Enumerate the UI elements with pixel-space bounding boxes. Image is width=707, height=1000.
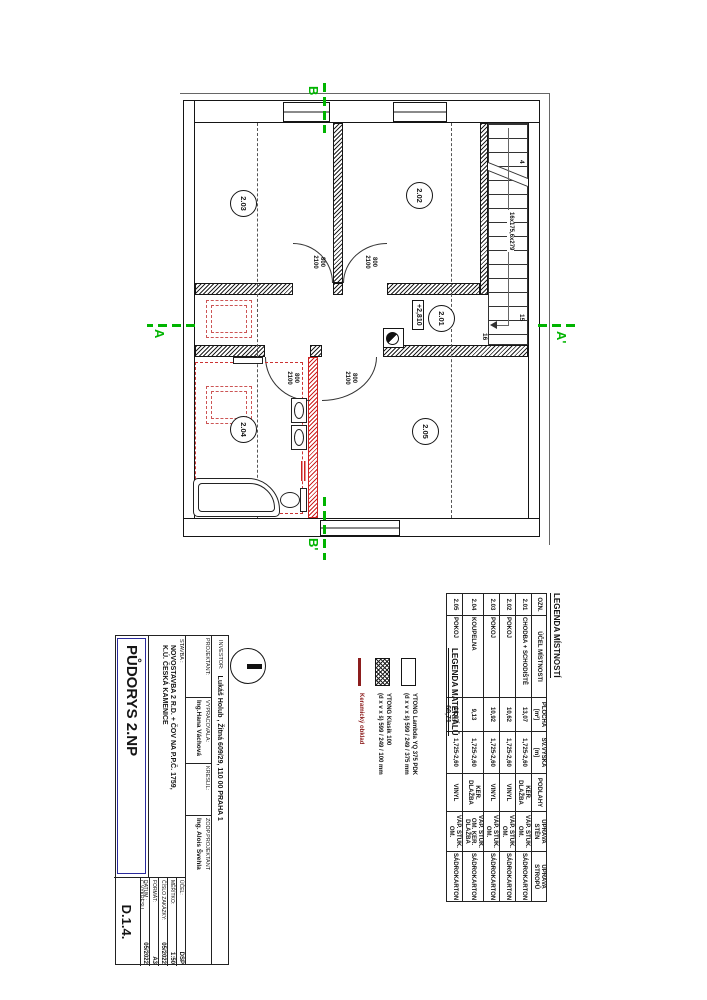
section-line-a	[147, 324, 195, 327]
room-number-2-01: 2.01	[428, 305, 455, 332]
vykres-label: Č.VÝKRESU	[138, 880, 144, 964]
stavba-label: STAVBA :	[178, 639, 184, 874]
window	[320, 520, 400, 536]
door-height: 2100	[312, 255, 318, 268]
window	[393, 102, 447, 122]
cell-ucel: POKOJ	[500, 616, 516, 698]
zodp-label: ZODP.PROJEKTANT	[204, 818, 210, 962]
orientation-needle	[247, 664, 262, 669]
stair-walkline	[496, 325, 509, 326]
roof-edge-line	[549, 93, 550, 545]
vypracovala-cell: VYPRACOVALA: Ing.Hana Váchová	[186, 698, 211, 764]
room-legend-row: 2.03 POKOJ 10,92 1,725-2,60 VINYL VÁP. Š…	[484, 594, 500, 902]
bathtub-inner	[198, 483, 275, 512]
section-line-a	[533, 324, 575, 327]
cell-ozn: 2.02	[500, 594, 516, 616]
investor-row: INVESTOR: Lukáš Holub , Žitná 609/29, 11…	[211, 636, 228, 964]
material-name: YTONG Lambda YQ 375 PDK	[411, 693, 417, 775]
projektant-cell: PROJEKTANT:	[186, 636, 211, 698]
roof-edge-line	[180, 93, 550, 94]
material-item-label: YTONG Klasik 100 (d x v x š) 599 / 249 /…	[376, 693, 391, 775]
authors-row: PROJEKTANT: VYPRACOVALA: Ing.Hana Váchov…	[185, 636, 211, 964]
material-dims: (d x v x š) 599 / 249 / 375 mm	[404, 693, 410, 775]
stair-step-number: 4	[518, 160, 525, 164]
material-swatch-ytong-klasik	[375, 658, 390, 686]
exterior-wall	[183, 100, 540, 123]
cell-plocha: 10,62	[500, 698, 516, 732]
cell-vyska: 1,725-2,60	[516, 732, 532, 774]
room-legend-row: 2.05 POKOJ 16,97 1,725-2,60 VINYL VÁP. Š…	[446, 594, 462, 902]
meritko-row: MĚŘÍTKO: 1:50	[167, 878, 176, 966]
material-dims: (d x v x š) 599 / 249 / 100 mm	[378, 693, 384, 775]
cell-vyska: 1,725-2,60	[462, 732, 483, 774]
exterior-wall	[528, 100, 540, 537]
cell-plocha: 10,92	[484, 698, 500, 732]
cell-stropy: SÁDROKARTON	[462, 852, 483, 902]
washbasin-bowl	[294, 429, 304, 446]
floor-level-label: +2,810	[412, 300, 424, 330]
partition-wall	[480, 123, 488, 295]
drawing-title-box: PŮDORYS 2.NP	[117, 638, 146, 874]
partition-wall	[383, 345, 528, 357]
header-plocha: PLOCHA [m²]	[532, 698, 547, 732]
format-label: FORMÁT:	[151, 880, 157, 902]
zodp-value: Ing. Alois Švehla	[195, 818, 202, 962]
format-row: FORMÁT: A3	[149, 878, 158, 966]
door-size-label: 800 2100	[364, 250, 377, 274]
cell-stropy: SÁDROKARTON	[516, 852, 532, 902]
header-ucel: ÚČEL MÍSTNOSTI	[532, 616, 547, 698]
section-label-b-prime: B'	[306, 538, 321, 550]
vykres-value: D.1.4.	[119, 905, 134, 940]
door-height: 2100	[344, 371, 350, 384]
material-name: YTONG Klasik 100	[385, 693, 391, 745]
stavba-line1: NOVOSTAVBA 2 R.D. + ČOV NA P.P.Č. 1759,	[169, 645, 176, 874]
room-legend-row: 2.02 POKOJ 10,62 1,725-2,60 VINYL VÁP. Š…	[500, 594, 516, 902]
cell-plocha: 9,13	[462, 698, 483, 732]
cell-podlahy: VINYL	[500, 774, 516, 812]
cell-ucel: POKOJ	[484, 616, 500, 698]
orientation-symbol-icon	[230, 648, 266, 684]
drawing-title-cell: PŮDORYS 2.NP	[114, 636, 148, 878]
partition-wall	[195, 283, 293, 295]
cell-ozn: 2.03	[484, 594, 500, 616]
section-line-b	[323, 497, 326, 560]
stair-step-number: 16	[481, 333, 488, 340]
section-label-a: A	[152, 329, 167, 338]
rotated-plan-sheet: 4 15 16 16x175,6x279 800 2100 800 2100 8…	[0, 0, 707, 1000]
header-stropy: ÚPRAVA STROPŮ	[532, 852, 547, 902]
cell-ozn: 2.04	[462, 594, 483, 616]
cell-steny: VÁP. ŠTUK. OM. KER. DLAŽBA	[462, 812, 483, 852]
cell-ucel: CHODBA + SCHODIŠTĚ	[516, 616, 532, 698]
door-size-label: 800 2100	[344, 366, 357, 390]
zodp-projektant-cell: ZODP.PROJEKTANT Ing. Alois Švehla	[186, 816, 211, 964]
chimney	[383, 328, 404, 348]
drawing-title: PŮDORYS 2.NP	[123, 645, 140, 756]
cell-steny: VÁP. ŠTUK. OM.	[446, 812, 462, 852]
header-ozn: OZN.	[532, 594, 547, 616]
title-block: INVESTOR: Lukáš Holub , Žitná 609/29, 11…	[115, 635, 229, 965]
door-width: 800	[351, 373, 357, 383]
material-name: Keramický obklad	[357, 693, 365, 744]
cell-steny: VÁP. ŠTUK. OM.	[484, 812, 500, 852]
investor-value: Lukáš Holub , Žitná 609/29, 110 00 PRAHA…	[217, 676, 224, 821]
drawing-sheet: 4 15 16 16x175,6x279 800 2100 800 2100 8…	[0, 0, 707, 1000]
vypracovala-value: Ing.Hana Váchová	[195, 700, 202, 761]
section-label-a-prime: A'	[554, 331, 569, 343]
vykres-cell: Č.VÝKRESU D.1.4.	[114, 878, 145, 966]
meritko-value: 1:50	[169, 952, 175, 964]
stavba-cell: STAVBA : NOVOSTAVBA 2 R.D. + ČOV NA P.P.…	[148, 636, 185, 878]
meta-column: ÚČEL: DSP MĚŘÍTKO: 1:50 ČÍSLO ZAKÁZKY: 0…	[114, 878, 185, 966]
kreslil-cell: KRESLIL:	[186, 764, 211, 816]
meritko-label: MĚŘÍTKO:	[169, 880, 175, 904]
ucel-label: ÚČEL:	[178, 880, 184, 895]
stavba-line2: K.Ú. ČESKÁ KAMENICE	[161, 645, 168, 874]
cell-stropy: SÁDROKARTON	[446, 852, 462, 902]
cell-vyska: 1,725-2,60	[500, 732, 516, 774]
cell-vyska: 1,725-2,60	[484, 732, 500, 774]
cell-stropy: SÁDROKARTON	[500, 852, 516, 902]
stair-step-number: 15	[518, 314, 525, 321]
kreslil-label: KRESLIL:	[204, 766, 210, 813]
bathtub	[193, 478, 280, 517]
door-width: 800	[319, 257, 325, 267]
washbasin-bowl	[294, 402, 304, 419]
header-steny: ÚPRAVA STĚN	[532, 812, 547, 852]
chimney-flue-icon	[386, 332, 399, 345]
material-legend-title: LEGENDA MATERIÁLŮ	[448, 648, 459, 736]
washbasin	[291, 398, 307, 423]
cell-ucel: KOUPELNA	[462, 616, 483, 698]
ucel-value: DSP	[178, 952, 184, 964]
room-legend-row: 2.01 CHODBA + SCHODIŠTĚ 13,07 1,725-2,60…	[516, 594, 532, 902]
door-width: 800	[371, 257, 377, 267]
cell-vyska: 1,725-2,60	[446, 732, 462, 774]
section-line-b	[323, 83, 326, 133]
room-legend-table: OZN. ÚČEL MÍSTNOSTI PLOCHA [m²] SV.VÝŠKA…	[446, 593, 547, 902]
projektant-label: PROJEKTANT:	[204, 638, 210, 695]
stair-dimension-label: 16x175,6x279	[507, 210, 514, 252]
cell-podlahy: KER. DLAŽBA	[462, 774, 483, 812]
header-podlahy: PODLAHY	[532, 774, 547, 812]
cell-plocha: 13,07	[516, 698, 532, 732]
door-height: 2100	[364, 255, 370, 268]
room-number-2-03: 2.03	[230, 190, 257, 217]
material-swatch-ytong-lambda	[401, 658, 416, 686]
partition-wall	[387, 283, 480, 295]
door-size-label: 800 2100	[312, 250, 325, 274]
toilet-tank	[300, 488, 307, 512]
cell-ozn: 2.01	[516, 594, 532, 616]
material-item-label: YTONG Lambda YQ 375 PDK (d x v x š) 599 …	[402, 693, 417, 775]
cell-ozn: 2.05	[446, 594, 462, 616]
partition-wall	[333, 283, 343, 295]
room-legend-header-row: OZN. ÚČEL MÍSTNOSTI PLOCHA [m²] SV.VÝŠKA…	[532, 594, 547, 902]
partition-wall	[310, 345, 322, 357]
header-vyska: SV.VÝŠKA [m]	[532, 732, 547, 774]
zakazka-row: ČÍSLO ZAKÁZKY: 05/2022	[158, 878, 167, 966]
ucel-row: ÚČEL: DSP	[176, 878, 185, 966]
room-number-2-02: 2.02	[406, 182, 433, 209]
cell-steny: VÁP. ŠTUK. OM.	[500, 812, 516, 852]
cell-podlahy: VINYL	[446, 774, 462, 812]
zakazka-label: ČÍSLO ZAKÁZKY:	[160, 880, 166, 920]
radiator	[233, 357, 263, 364]
cell-podlahy: VINYL	[484, 774, 500, 812]
room-legend-title: LEGENDA MÍSTNOSTÍ	[550, 593, 561, 678]
vypracovala-label: VYPRACOVALA:	[204, 700, 210, 761]
roof-window-inner	[211, 305, 247, 333]
washbasin	[291, 425, 307, 450]
room-legend-row: 2.04 KOUPELNA 9,13 1,725-2,60 KER. DLAŽB…	[462, 594, 483, 902]
partition-wall	[333, 123, 343, 283]
exterior-wall	[183, 100, 195, 537]
investor-label: INVESTOR:	[217, 640, 223, 670]
roof-window	[206, 300, 252, 338]
section-label-b: B	[306, 86, 321, 95]
cell-stropy: SÁDROKARTON	[484, 852, 500, 902]
material-swatch-ceramic-line	[359, 658, 362, 686]
toilet-bowl	[280, 492, 300, 508]
stair-direction-arrow	[490, 321, 497, 329]
partition-wall	[195, 345, 265, 357]
format-value: A3	[151, 956, 157, 964]
zakazka-value: 05/2022	[160, 942, 166, 964]
cell-steny: VÁP. ŠTUK. OM.	[516, 812, 532, 852]
red-tiling-mark	[301, 461, 307, 481]
cell-podlahy: KER. DLAŽBA	[516, 774, 532, 812]
roof-window-inner	[211, 391, 247, 419]
room-number-2-05: 2.05	[412, 418, 439, 445]
room-number-2-04: 2.04	[230, 416, 257, 443]
